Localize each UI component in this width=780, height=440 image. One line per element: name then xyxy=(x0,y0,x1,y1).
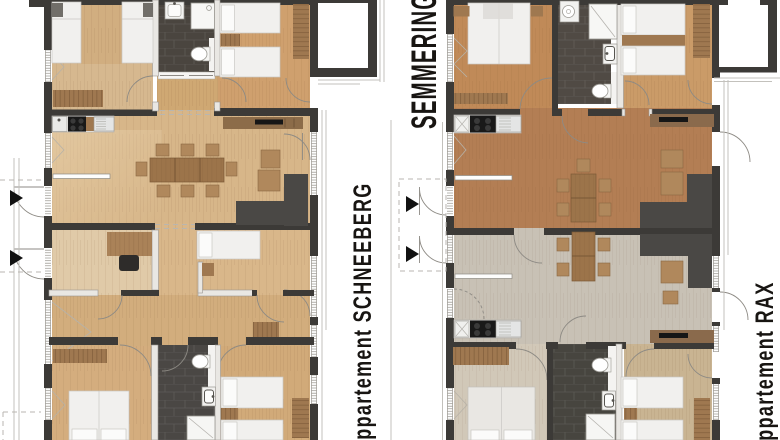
svg-text:Appartement RAX: Appartement RAX xyxy=(750,282,779,440)
svg-text:Appartement SCHNEEBERG: Appartement SCHNEEBERG xyxy=(348,182,377,440)
svg-text:SEMMERING: SEMMERING xyxy=(405,0,444,129)
